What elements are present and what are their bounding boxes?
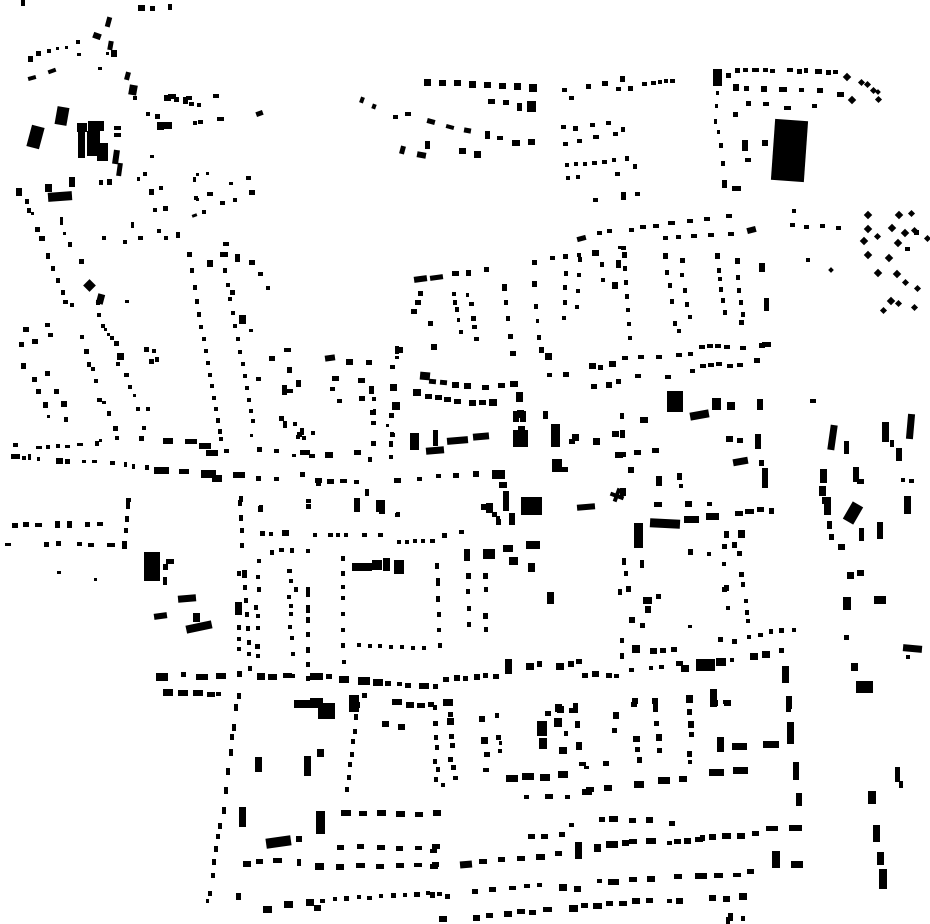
building-footprint <box>750 653 758 660</box>
building-footprint <box>459 330 463 334</box>
building-footprint <box>745 509 754 514</box>
building-footprint <box>909 479 914 483</box>
building-footprint <box>613 712 619 719</box>
building-footprint <box>145 465 149 470</box>
building-footprint <box>316 811 325 834</box>
building-footprint <box>65 445 70 448</box>
building-footprint <box>101 324 105 328</box>
building-footprint <box>599 817 605 822</box>
building-footprint <box>532 260 537 265</box>
building-footprint <box>47 49 51 53</box>
building-footprint <box>649 666 653 670</box>
building-footprint <box>256 575 260 579</box>
building-footprint <box>193 285 197 290</box>
building-footprint <box>681 665 689 672</box>
building-footprint <box>709 769 724 776</box>
building-footprint <box>663 253 668 259</box>
building-footprint <box>592 250 599 256</box>
building-footprint <box>206 361 210 365</box>
building-footprint <box>48 333 53 337</box>
building-footprint <box>237 625 241 630</box>
building-footprint <box>245 612 249 617</box>
building-footprint <box>389 413 394 417</box>
building-footprint <box>524 884 530 888</box>
building-footprint <box>420 372 431 381</box>
building-footprint <box>761 86 767 92</box>
building-footprint <box>425 141 430 149</box>
building-footprint <box>676 235 681 239</box>
building-footprint <box>472 325 477 329</box>
building-footprint <box>411 309 417 314</box>
building-footprint <box>574 162 578 166</box>
building-footprint <box>56 47 59 50</box>
building-footprint <box>622 356 628 360</box>
building-footprint <box>650 518 680 529</box>
building-footprint <box>528 139 535 145</box>
building-footprint <box>438 643 442 648</box>
building-footprint <box>441 783 445 787</box>
building-footprint <box>238 350 242 354</box>
building-footprint <box>512 140 520 146</box>
building-footprint <box>21 363 26 369</box>
building-footprint <box>13 443 18 447</box>
building-footprint <box>589 363 596 369</box>
building-footprint <box>579 762 586 766</box>
building-footprint <box>440 380 447 386</box>
building-footprint <box>94 578 97 581</box>
building-footprint <box>232 724 236 731</box>
building-footprint <box>654 502 662 507</box>
building-footprint <box>492 470 505 479</box>
building-footprint <box>452 292 456 296</box>
building-footprint <box>561 467 568 472</box>
building-footprint <box>250 434 253 437</box>
building-footprint <box>689 732 694 737</box>
building-footprint <box>306 499 311 503</box>
building-footprint <box>466 573 471 579</box>
building-footprint <box>449 734 454 739</box>
building-footprint <box>843 597 851 610</box>
building-footprint <box>296 836 302 842</box>
building-footprint <box>359 811 367 816</box>
building-footprint <box>715 344 721 348</box>
building-footprint <box>575 842 582 859</box>
building-footprint <box>633 736 640 742</box>
building-footprint <box>556 663 564 670</box>
building-footprint <box>640 417 648 423</box>
building-footprint <box>224 449 229 453</box>
building-footprint <box>226 283 230 287</box>
building-footprint <box>212 475 222 482</box>
building-footprint <box>230 290 235 295</box>
building-footprint <box>454 80 461 86</box>
building-footprint <box>706 513 719 520</box>
building-footprint <box>223 268 227 273</box>
building-footprint <box>385 681 391 686</box>
building-footprint <box>256 859 263 864</box>
building-footprint <box>708 363 714 367</box>
building-footprint <box>44 542 49 547</box>
building-footprint <box>479 400 486 405</box>
building-footprint <box>432 844 440 849</box>
building-footprint <box>23 522 29 527</box>
building-footprint <box>674 839 681 844</box>
building-footprint <box>395 356 399 359</box>
building-footprint <box>249 329 253 332</box>
building-footprint <box>746 101 751 106</box>
building-footprint <box>452 271 459 276</box>
building-footprint <box>117 353 124 360</box>
building-footprint <box>341 810 351 816</box>
building-footprint <box>680 258 685 263</box>
building-footprint <box>397 347 403 353</box>
building-footprint <box>56 278 60 283</box>
building-footprint <box>149 359 154 364</box>
building-footprint <box>498 857 505 862</box>
building-footprint <box>609 361 616 367</box>
building-footprint <box>529 84 537 92</box>
building-footprint <box>198 120 203 124</box>
building-footprint <box>653 224 659 228</box>
building-footprint <box>214 846 218 852</box>
building-footprint <box>796 793 802 806</box>
building-footprint <box>91 367 95 371</box>
building-footprint <box>396 863 404 868</box>
building-footprint <box>260 531 265 536</box>
building-footprint <box>98 67 102 70</box>
building-footprint <box>688 352 693 356</box>
building-footprint <box>559 747 567 754</box>
building-footprint <box>247 652 251 656</box>
building-footprint <box>179 469 189 474</box>
building-footprint <box>102 401 106 404</box>
building-footprint <box>204 349 208 353</box>
building-footprint <box>539 347 544 353</box>
building-footprint <box>528 563 535 572</box>
building-footprint <box>724 531 729 538</box>
building-footprint <box>667 391 683 412</box>
building-footprint <box>386 424 389 427</box>
building-footprint <box>568 661 574 667</box>
building-footprint <box>143 172 147 176</box>
building-footprint <box>289 604 293 608</box>
building-footprint <box>738 530 745 538</box>
building-footprint <box>36 389 41 394</box>
building-footprint <box>746 619 750 623</box>
building-footprint <box>726 436 733 442</box>
building-footprint <box>759 263 765 272</box>
building-footprint <box>306 549 310 553</box>
building-footprint <box>536 319 539 323</box>
building-footprint <box>510 351 516 356</box>
building-footprint <box>513 411 519 422</box>
building-footprint <box>687 219 693 223</box>
building-footprint <box>625 156 629 161</box>
building-footprint <box>732 743 747 750</box>
building-footprint <box>256 377 261 381</box>
building-footprint <box>243 374 247 378</box>
building-footprint <box>48 191 73 202</box>
building-footprint <box>529 910 536 915</box>
building-footprint <box>762 468 768 488</box>
building-footprint <box>439 916 447 922</box>
building-footprint <box>370 410 376 415</box>
building-footprint <box>590 123 595 127</box>
building-footprint <box>541 834 548 839</box>
building-footprint <box>754 358 760 363</box>
building-footprint <box>99 439 102 442</box>
building-footprint <box>652 448 659 453</box>
building-footprint <box>899 781 903 788</box>
building-footprint <box>606 841 618 848</box>
building-footprint <box>764 298 769 311</box>
building-footprint <box>717 737 724 752</box>
building-footprint <box>455 307 459 312</box>
building-footprint <box>459 148 466 154</box>
building-footprint <box>309 454 315 458</box>
building-footprint <box>640 623 645 628</box>
building-footprint <box>434 735 438 740</box>
building-footprint <box>425 394 432 399</box>
building-footprint <box>646 838 656 844</box>
building-footprint <box>337 845 344 850</box>
building-footprint <box>393 115 398 119</box>
building-footprint <box>464 549 470 561</box>
building-footprint <box>847 572 854 579</box>
building-footprint <box>185 439 197 444</box>
building-footprint <box>341 596 345 600</box>
building-footprint <box>410 433 419 450</box>
building-footprint <box>257 447 262 452</box>
building-footprint <box>629 668 634 672</box>
building-footprint <box>723 896 730 902</box>
building-footprint <box>873 825 880 842</box>
building-footprint <box>763 68 768 72</box>
building-footprint <box>787 722 794 744</box>
building-footprint <box>306 605 310 613</box>
building-footprint <box>405 683 411 688</box>
building-footprint <box>467 622 471 627</box>
building-footprint <box>304 756 311 776</box>
building-footprint <box>608 879 619 885</box>
building-footprint <box>237 693 241 699</box>
building-footprint <box>469 400 476 406</box>
building-footprint <box>506 316 510 321</box>
building-footprint <box>339 676 349 683</box>
building-footprint <box>593 438 600 445</box>
building-footprint <box>612 158 616 162</box>
building-footprint <box>293 422 297 426</box>
building-footprint <box>859 528 864 541</box>
building-footprint <box>744 599 748 603</box>
building-footprint <box>235 254 240 262</box>
building-footprint <box>69 177 75 187</box>
building-footprint <box>398 724 405 730</box>
building-footprint <box>603 761 609 766</box>
building-footprint <box>722 544 727 549</box>
building-footprint <box>394 478 401 483</box>
building-footprint <box>31 212 34 215</box>
building-footprint <box>793 762 799 780</box>
building-footprint <box>65 46 68 49</box>
building-footprint <box>786 700 791 712</box>
building-footprint <box>534 304 538 309</box>
building-footprint <box>762 140 768 146</box>
building-footprint <box>591 384 597 389</box>
building-footprint <box>563 285 567 290</box>
building-footprint <box>747 869 754 874</box>
building-footprint <box>257 559 261 563</box>
building-footprint <box>482 385 489 390</box>
building-footprint <box>467 606 471 611</box>
building-footprint <box>521 497 542 515</box>
building-footprint <box>576 659 582 664</box>
building-footprint <box>224 787 228 794</box>
building-footprint <box>640 225 646 229</box>
building-footprint <box>138 236 143 240</box>
building-footprint <box>747 635 751 639</box>
building-footprint <box>551 424 560 447</box>
building-footprint <box>612 728 617 733</box>
building-footprint <box>576 175 580 179</box>
building-footprint <box>246 176 251 180</box>
building-footprint <box>153 208 157 212</box>
building-footprint <box>727 364 733 368</box>
building-footprint <box>348 762 352 767</box>
building-footprint <box>365 489 369 496</box>
building-footprint <box>620 76 625 82</box>
building-footprint <box>645 606 651 613</box>
building-footprint <box>727 402 735 410</box>
building-footprint <box>759 460 764 466</box>
building-footprint <box>620 413 624 419</box>
building-footprint <box>537 721 547 736</box>
building-footprint <box>77 123 87 132</box>
building-footprint <box>592 161 597 165</box>
building-footprint <box>629 839 637 844</box>
building-footprint <box>87 362 91 367</box>
building-footprint <box>124 462 127 467</box>
building-footprint <box>279 548 284 552</box>
building-footprint <box>136 407 140 411</box>
building-footprint <box>609 816 618 822</box>
building-footprint <box>43 402 48 408</box>
building-footprint <box>653 704 658 712</box>
building-footprint <box>565 795 570 799</box>
building-footprint <box>635 374 641 378</box>
building-footprint <box>354 714 358 720</box>
building-footprint <box>194 196 198 200</box>
building-footprint <box>797 69 802 74</box>
building-footprint <box>128 84 138 95</box>
building-footprint <box>429 379 436 385</box>
building-footprint <box>436 578 440 586</box>
building-footprint <box>670 79 675 83</box>
building-footprint <box>124 528 128 533</box>
building-footprint <box>433 721 438 726</box>
building-footprint <box>499 83 506 89</box>
building-footprint <box>792 628 796 632</box>
building-footprint <box>700 835 705 841</box>
building-footprint <box>594 844 601 852</box>
building-footprint <box>202 210 206 214</box>
building-footprint <box>896 448 902 461</box>
building-footprint <box>844 441 849 454</box>
building-footprint <box>837 92 844 97</box>
building-footprint <box>799 88 804 92</box>
building-footprint <box>545 711 551 716</box>
building-footprint <box>326 674 332 679</box>
building-footprint <box>733 112 738 117</box>
building-footprint <box>237 571 241 576</box>
building-footprint <box>371 421 375 425</box>
building-footprint <box>472 889 478 894</box>
building-footprint <box>435 395 442 400</box>
building-footprint <box>763 102 769 106</box>
building-footprint <box>450 743 455 748</box>
building-footprint <box>463 676 468 681</box>
building-footprint <box>88 543 94 547</box>
building-footprint <box>762 651 770 658</box>
building-footprint <box>368 457 372 462</box>
building-footprint <box>679 776 687 782</box>
building-footprint <box>340 479 347 483</box>
building-footprint <box>389 645 393 649</box>
building-footprint <box>718 637 723 642</box>
building-footprint <box>235 602 242 615</box>
building-footprint <box>496 735 501 740</box>
building-footprint <box>659 665 664 669</box>
building-footprint <box>709 834 716 840</box>
building-footprint <box>106 52 109 55</box>
building-footprint <box>341 556 345 561</box>
building-footprint <box>745 610 749 615</box>
building-footprint <box>306 632 310 637</box>
building-footprint <box>569 823 574 827</box>
building-footprint <box>142 426 146 430</box>
building-footprint <box>717 130 720 134</box>
building-footprint <box>434 777 438 782</box>
building-footprint <box>166 559 174 564</box>
building-footprint <box>302 436 306 440</box>
building-footprint-map <box>0 0 930 924</box>
building-footprint <box>290 636 294 640</box>
building-footprint <box>233 472 245 478</box>
building-footprint <box>606 382 612 388</box>
building-footprint <box>670 299 674 304</box>
building-footprint <box>584 766 589 769</box>
building-footprint <box>193 690 203 696</box>
building-footprint <box>448 712 453 717</box>
building-footprint <box>241 362 245 366</box>
building-footprint <box>65 459 70 464</box>
building-footprint <box>390 384 397 391</box>
building-footprint <box>273 858 282 863</box>
building-footprint <box>676 898 683 904</box>
building-footprint <box>622 252 627 258</box>
building-footprint <box>76 40 80 44</box>
building-footprint <box>217 117 224 121</box>
building-footprint <box>320 899 325 903</box>
building-footprint <box>238 500 242 506</box>
building-footprint <box>454 399 461 404</box>
building-footprint <box>509 513 515 525</box>
building-footprint <box>79 259 84 264</box>
building-footprint <box>562 316 566 320</box>
building-footprint <box>527 101 536 112</box>
building-footprint <box>249 409 253 413</box>
building-footprint <box>874 596 886 604</box>
